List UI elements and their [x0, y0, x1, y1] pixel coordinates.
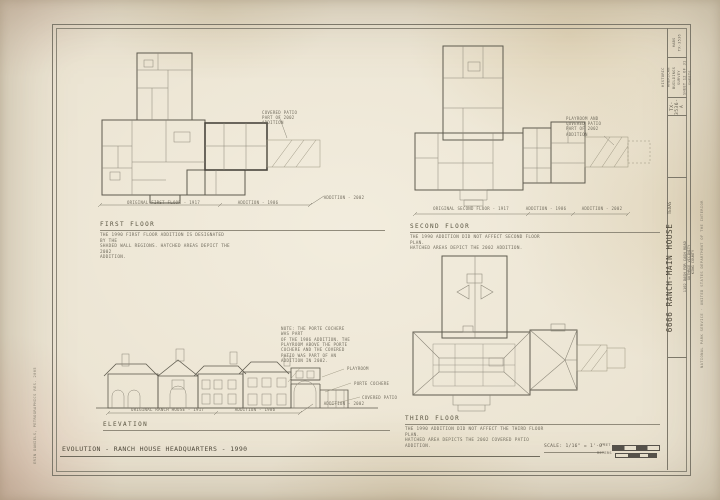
title-block-empty-box	[668, 358, 687, 470]
elevation-heading-rule	[103, 430, 390, 431]
second-floor-heading-rule	[410, 232, 660, 233]
structure-county: KING COUNTY	[691, 250, 695, 274]
first-floor-dim-original: ORIGINAL FIRST FLOOR - 1917	[116, 200, 211, 205]
feet-scale-bar	[612, 445, 660, 451]
title-block-call-number-box: HABS TX-3536	[668, 28, 687, 58]
first-floor-dim-addition-1986: ADDITION - 1986	[230, 200, 286, 205]
title-block-survey-heading-box: HISTORIC AMERICAN BUILDINGS SURVEY SHEET…	[668, 58, 687, 98]
meters-scale-bar	[615, 453, 657, 458]
meters-label: METERS	[597, 451, 612, 455]
elevation-heading: ELEVATION	[103, 421, 148, 428]
structure-state: TEXAS	[667, 202, 672, 215]
second-floor-heading: SECOND FLOOR	[410, 223, 470, 230]
delineator-credit: ERIN DANIELS, PETROGRAPHICS RES. 2005	[33, 378, 37, 464]
elevation-dim-addition-2002: ADDITION - 2002	[316, 401, 372, 406]
sheet-title: EVOLUTION - RANCH HOUSE HEADQUARTERS - 1…	[62, 445, 247, 453]
first-floor-dim-addition-2002: ADDITION - 2002	[316, 195, 372, 200]
second-floor-plan-drawing	[408, 38, 673, 218]
third-floor-heading-rule	[405, 424, 660, 425]
survey-heading-text: HISTORIC AMERICAN BUILDINGS SURVEY SHEET…	[661, 58, 693, 97]
structure-name: 6666 RANCH-MAIN HOUSE	[665, 224, 674, 333]
elevation-label-covered-patio: COVERED PATIO	[362, 395, 397, 400]
third-floor-heading: THIRD FLOOR	[405, 415, 460, 422]
second-floor-dim-addition-2002: ADDITION - 2002	[574, 206, 630, 211]
second-floor-playroom-note: PLAYROOM AND COVERED PATIO PART OF 2002 …	[566, 116, 608, 137]
sheet-title-rule	[60, 456, 540, 457]
call-number-text: HABS TX-3536	[672, 34, 683, 51]
second-floor-dim-addition-1986: ADDITION - 1986	[518, 206, 574, 211]
survey-number-text: TX-3536-A	[670, 98, 685, 115]
title-block-survey-number-box: TX-3536-A	[668, 98, 687, 116]
elevation-label-playroom: PLAYROOM	[347, 366, 369, 371]
scale-label: SCALE: 1/16" = 1'-0"	[544, 444, 605, 449]
habs-drawing-sheet: { "sheet": { "main_title": "EVOLUTION - …	[0, 0, 720, 500]
first-floor-heading-rule	[100, 230, 385, 231]
first-floor-note: THE 1990 FIRST FLOOR ADDITION IS DESIGNA…	[100, 233, 232, 261]
feet-label: FEET	[601, 443, 611, 447]
elevation-note: NOTE: THE PORTE COCHERE WAS PART OF THE …	[281, 326, 351, 363]
scale-rule	[544, 452, 604, 453]
title-block-name-box: 6666 RANCH-MAIN HOUSETEXAS 1102 DASH FOR…	[668, 178, 687, 358]
elevation-label-porte-cochere: PORTE COCHERE	[354, 381, 389, 386]
structure-location-line: 1102 DASH FOR CASH ROAD GUTHRIE VICINITY…	[679, 202, 695, 331]
first-floor-heading: FIRST FLOOR	[100, 221, 155, 228]
elevation-dim-addition-1986: ADDITION - 1986	[227, 407, 283, 412]
title-block-strip: HABS TX-3536 HISTORIC AMERICAN BUILDINGS…	[667, 28, 687, 470]
first-floor-patio-note: COVERED PATIO PART OF 2002 ADDITION	[262, 110, 302, 126]
third-floor-plan-drawing	[405, 248, 670, 413]
elevation-dim-original: ORIGINAL RANCH HOUSE - 1917	[131, 407, 197, 412]
title-block-spacer-box	[668, 116, 687, 178]
second-floor-dim-original: ORIGINAL SECOND FLOOR - 1917	[425, 206, 517, 211]
first-floor-plan-drawing	[88, 42, 388, 210]
third-floor-note: THE 1990 ADDITION DID NOT AFFECT THE THI…	[405, 427, 550, 449]
agency-credit: NATIONAL PARK SERVICE · UNITED STATES DE…	[700, 172, 704, 368]
